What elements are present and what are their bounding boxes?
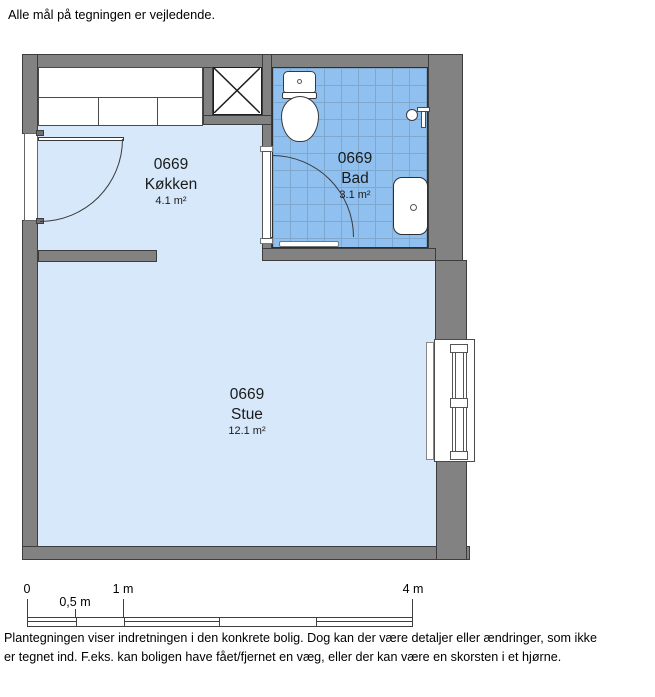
scale-label-4m: 4 m (393, 582, 433, 596)
room-area: 4.1 m² (101, 194, 241, 208)
scale-bar: 0 0,5 m 1 m 4 m (0, 575, 470, 630)
shower-head-icon (406, 109, 418, 121)
shower-bar-icon (421, 111, 426, 128)
room-number: 0669 (101, 155, 241, 175)
wall-bathroom-west-upper (262, 54, 272, 152)
toilet-bowl (281, 96, 319, 142)
window-handle-block (450, 451, 468, 460)
cabinet-divider-line (98, 97, 99, 126)
scale-segment-divider (124, 618, 125, 626)
room-area: 3.1 m² (305, 188, 405, 202)
wall-left-upper (22, 54, 38, 134)
bath-door-frame (262, 151, 271, 239)
scale-label-0: 0 (17, 582, 37, 596)
scale-segment-filled (316, 618, 412, 626)
drain-icon (410, 204, 417, 211)
scale-segment-filled (28, 618, 76, 626)
scale-label-1m: 1 m (103, 582, 143, 596)
entrance-jamb-top (36, 130, 44, 136)
bathroom-threshold (279, 241, 339, 247)
footer-line-1: Plantegningen viser indretningen i den k… (4, 629, 654, 648)
wall-top (22, 54, 463, 68)
wall-shaft-bottom (203, 115, 272, 125)
scale-tick (75, 609, 76, 617)
room-label-kokken: 0669 Køkken 4.1 m² (101, 155, 241, 208)
radiator (426, 342, 434, 460)
kitchen-cabinet-row (38, 97, 203, 126)
scale-tick (27, 599, 28, 617)
wall-bottom (22, 546, 470, 560)
footer-disclaimer: Plantegningen viser indretningen i den k… (4, 629, 654, 666)
scale-label-05m: 0,5 m (47, 595, 103, 609)
scale-segment-divider (76, 618, 77, 626)
scale-tick (123, 599, 124, 617)
floor-plan-page: Alle mål på tegningen er vejledende. (0, 0, 655, 697)
window-handle-block (450, 344, 468, 353)
room-label-stue: 0669 Stue 12.1 m² (177, 385, 317, 438)
room-number: 0669 (177, 385, 317, 405)
room-name: Køkken (101, 175, 241, 195)
wall-bathroom-south (262, 248, 436, 261)
scale-segment-divider (219, 618, 220, 626)
shaft-symbol (213, 67, 262, 115)
wall-kitchen-divider (38, 250, 157, 262)
kitchen-counter-top (38, 67, 203, 98)
wall-left-lower (22, 220, 38, 560)
window-handle-block (450, 398, 468, 408)
wall-right-upper (428, 54, 463, 261)
room-label-bad: 0669 Bad 3.1 m² (305, 149, 405, 202)
toilet-button-icon (297, 79, 302, 84)
scale-band (27, 617, 413, 627)
footer-line-2: er tegnet ind. F.eks. kan boligen have f… (4, 648, 654, 667)
cabinet-divider-line (157, 97, 158, 126)
room-area: 12.1 m² (177, 424, 317, 438)
shaft-x-icon (214, 68, 260, 113)
room-number: 0669 (305, 149, 405, 169)
wall-right-lower (436, 461, 467, 560)
scale-segment-divider (316, 618, 317, 626)
room-name: Bad (305, 169, 405, 189)
scale-segment-filled (124, 618, 219, 626)
room-name: Stue (177, 405, 317, 425)
scale-tick (412, 599, 413, 617)
wall-right-middle (435, 260, 467, 340)
entrance-door-frame (24, 133, 38, 221)
